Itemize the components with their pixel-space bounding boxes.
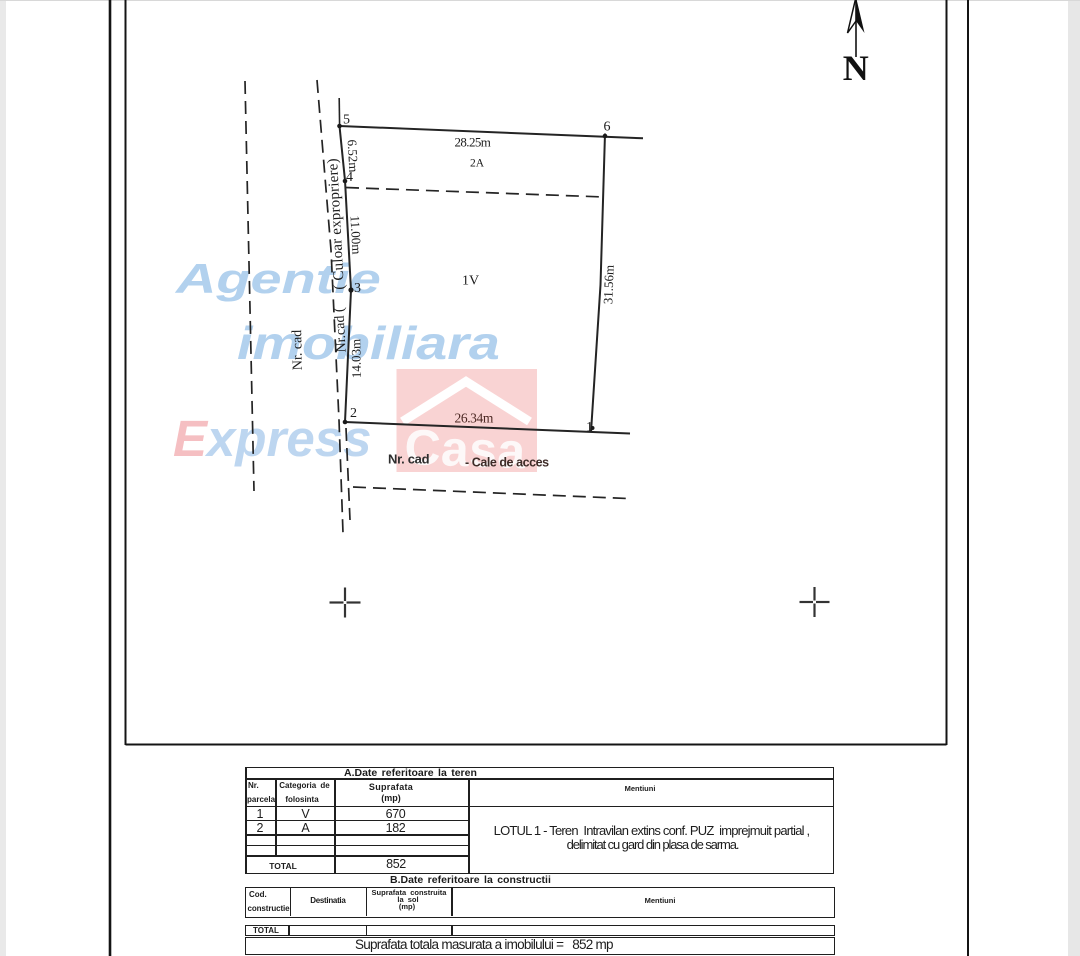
svg-text:Nr. cad: Nr. cad	[290, 330, 306, 371]
svg-text:N: N	[843, 48, 869, 88]
svg-text:26.34m: 26.34m	[455, 411, 494, 426]
svg-text:Express: Express	[173, 410, 372, 467]
svg-text:6.52m: 6.52m	[345, 139, 362, 173]
svg-text:28.25m: 28.25m	[455, 135, 491, 150]
svg-text:2: 2	[350, 406, 357, 421]
svg-text:6: 6	[604, 120, 611, 135]
svg-text:1: 1	[586, 420, 593, 435]
svg-text:5: 5	[343, 113, 350, 128]
svg-text:2A: 2A	[470, 158, 485, 170]
svg-text:Nr. cad: Nr. cad	[388, 452, 430, 467]
svg-text:Nr.cad (: Nr.cad (	[332, 307, 349, 353]
svg-text:1V: 1V	[462, 274, 479, 289]
svg-text:14.03m: 14.03m	[348, 339, 364, 379]
svg-text:- Cale de acces: - Cale de acces	[465, 456, 549, 470]
svg-text:3: 3	[354, 281, 361, 296]
svg-text:31.56m: 31.56m	[600, 265, 616, 305]
svg-text:imobiliara: imobiliara	[237, 318, 500, 369]
svg-text:11.00m: 11.00m	[347, 215, 364, 255]
